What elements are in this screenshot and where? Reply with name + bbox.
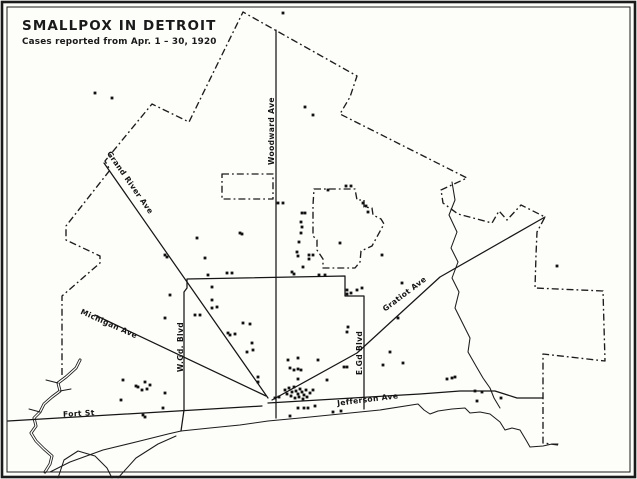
case-dot [314,405,317,408]
enclave-northwest [222,174,273,199]
case-dot [289,415,292,418]
map-subtitle: Cases reported from Apr. 1 – 30, 1920 [22,37,204,47]
case-dot [500,397,503,400]
case-dot [251,342,254,345]
case-dot [297,357,300,360]
case-dot [317,359,320,362]
case-dot [301,212,304,215]
case-dot [350,185,353,188]
case-dot [298,241,301,244]
case-dot [300,232,303,235]
case-dot [347,326,350,329]
case-dot [301,391,304,394]
case-dot [169,294,172,297]
case-dot [476,400,479,403]
case-dot [350,292,353,295]
case-dot [307,407,310,410]
river-rouge-spur-1 [60,389,71,391]
case-dot [474,390,477,393]
case-dot [286,393,289,396]
case-dot [287,359,290,362]
map-frame-outer [2,2,635,477]
case-dot [346,289,349,292]
case-dot [318,274,321,277]
case-dot [308,258,311,261]
street-labels-layer: Grand River AveWoodward AveW.Gd. BlvdE.G… [63,97,428,419]
case-dot [297,378,300,381]
case-dot [332,411,335,414]
case-dot [289,367,292,370]
case-dot [304,212,307,215]
case-dot [312,114,315,117]
case-dot [241,233,244,236]
case-dot [454,376,457,379]
map-canvas: Grand River AveWoodward AveW.Gd. BlvdE.G… [0,0,637,479]
case-dot [207,274,210,277]
case-dot [306,396,309,399]
case-dot [296,251,299,254]
woodward-ave-label: Woodward Ave [267,97,276,165]
case-dot [346,331,349,334]
fort-st-label: Fort St [63,408,95,419]
case-dot [297,407,300,410]
case-dot [556,265,559,268]
case-dot [111,97,114,100]
case-dot [211,307,214,310]
case-dot [300,369,303,372]
case-dot [402,362,405,365]
case-dot [300,221,303,224]
case-dot [284,389,287,392]
case-dot [299,388,302,391]
case-dot [204,257,207,260]
case-dot [211,286,214,289]
case-dot [312,254,315,257]
case-dot [164,392,167,395]
jefferson-ave-label: Jefferson Ave [336,391,399,408]
case-dot [282,202,285,205]
river-rouge-spur-0 [46,380,58,383]
case-dot [162,407,165,410]
case-dot [120,399,123,402]
case-dot [303,407,306,410]
case-dot [308,254,311,257]
case-dot [327,189,330,192]
gratiot-ave [272,217,545,400]
case-dot [149,384,152,387]
case-dot [249,323,252,326]
grand-river-ave [104,163,268,398]
case-dot [356,289,359,292]
city-boundary-layer [62,12,605,445]
case-dot [389,351,392,354]
case-dot [194,314,197,317]
case-dot [343,366,346,369]
case-dot [309,392,312,395]
case-dot [481,391,484,394]
case-dot [166,256,169,259]
enclave-northeast [313,189,384,268]
case-dot [365,205,368,208]
case-dot [381,254,384,257]
case-dot [298,396,301,399]
map-title: SMALLPOX IN DETROIT [22,19,204,35]
case-dot [231,272,234,275]
case-dot [144,416,147,419]
smallpox-detroit-map: Grand River AveWoodward AveW.Gd. BlvdE.G… [0,0,637,479]
grand-river-ave-label: Grand River Ave [105,149,155,215]
case-dot [277,202,280,205]
e-grand-blvd-label: E.Gd Blvd [355,331,364,375]
case-dot [339,242,342,245]
case-dot [304,106,307,109]
case-dot [312,389,315,392]
water-layer [29,182,558,478]
case-dot [146,388,149,391]
case-dot [246,351,249,354]
case-dot [216,306,219,309]
case-dot [346,366,349,369]
case-dot [397,317,400,320]
creek-0 [449,182,500,408]
river-rouge-spur-2 [29,409,40,412]
case-dot [211,299,214,302]
case-dot [382,364,385,367]
case-dot [234,333,237,336]
case-dot [303,394,306,397]
case-dot [340,410,343,413]
case-dot [196,237,199,240]
case-dot [122,379,125,382]
case-dot [257,381,260,384]
fort-st [8,406,262,421]
map-frame [2,2,635,477]
grand-blvd [181,276,364,431]
case-dot [290,395,293,398]
case-dot [288,387,291,390]
case-dot [362,202,365,205]
case-dot [367,211,370,214]
case-dot [242,322,245,325]
case-dot [297,393,300,396]
case-dot [229,334,232,337]
city-limits-0 [62,12,605,445]
case-dot [94,92,97,95]
case-dot [301,226,304,229]
case-dot [302,266,305,269]
case-dot [324,274,327,277]
case-dot [274,397,277,400]
case-dot [302,398,305,401]
case-dot [361,287,364,290]
case-dot [294,397,297,400]
case-dot [141,389,144,392]
case-dot [278,396,281,399]
case-dot [226,272,229,275]
case-dot [293,386,296,389]
case-dot [293,369,296,372]
title-block: SMALLPOX IN DETROIT Cases reported from … [22,19,204,47]
case-dot [291,391,294,394]
case-dot [199,314,202,317]
case-dot [305,389,308,392]
case-dot [401,282,404,285]
case-dot [446,378,449,381]
michigan-ave-label: Michigan Ave [79,307,139,340]
case-dot [326,379,329,382]
case-dot [297,368,300,371]
case-dot [137,386,140,389]
case-dot [346,293,349,296]
streets-layer [8,30,545,431]
case-dot [293,273,296,276]
case-dot [451,377,454,380]
case-dot [295,390,298,393]
case-dot [144,381,147,384]
case-dot [297,255,300,258]
case-dot [164,317,167,320]
case-dot [257,376,260,379]
case-dots-layer [94,12,559,419]
case-dot [252,349,255,352]
w-grand-blvd-label: W.Gd. Blvd [176,322,185,372]
case-dot [345,185,348,188]
map-frame-inner [7,7,630,472]
case-dot [282,12,285,15]
